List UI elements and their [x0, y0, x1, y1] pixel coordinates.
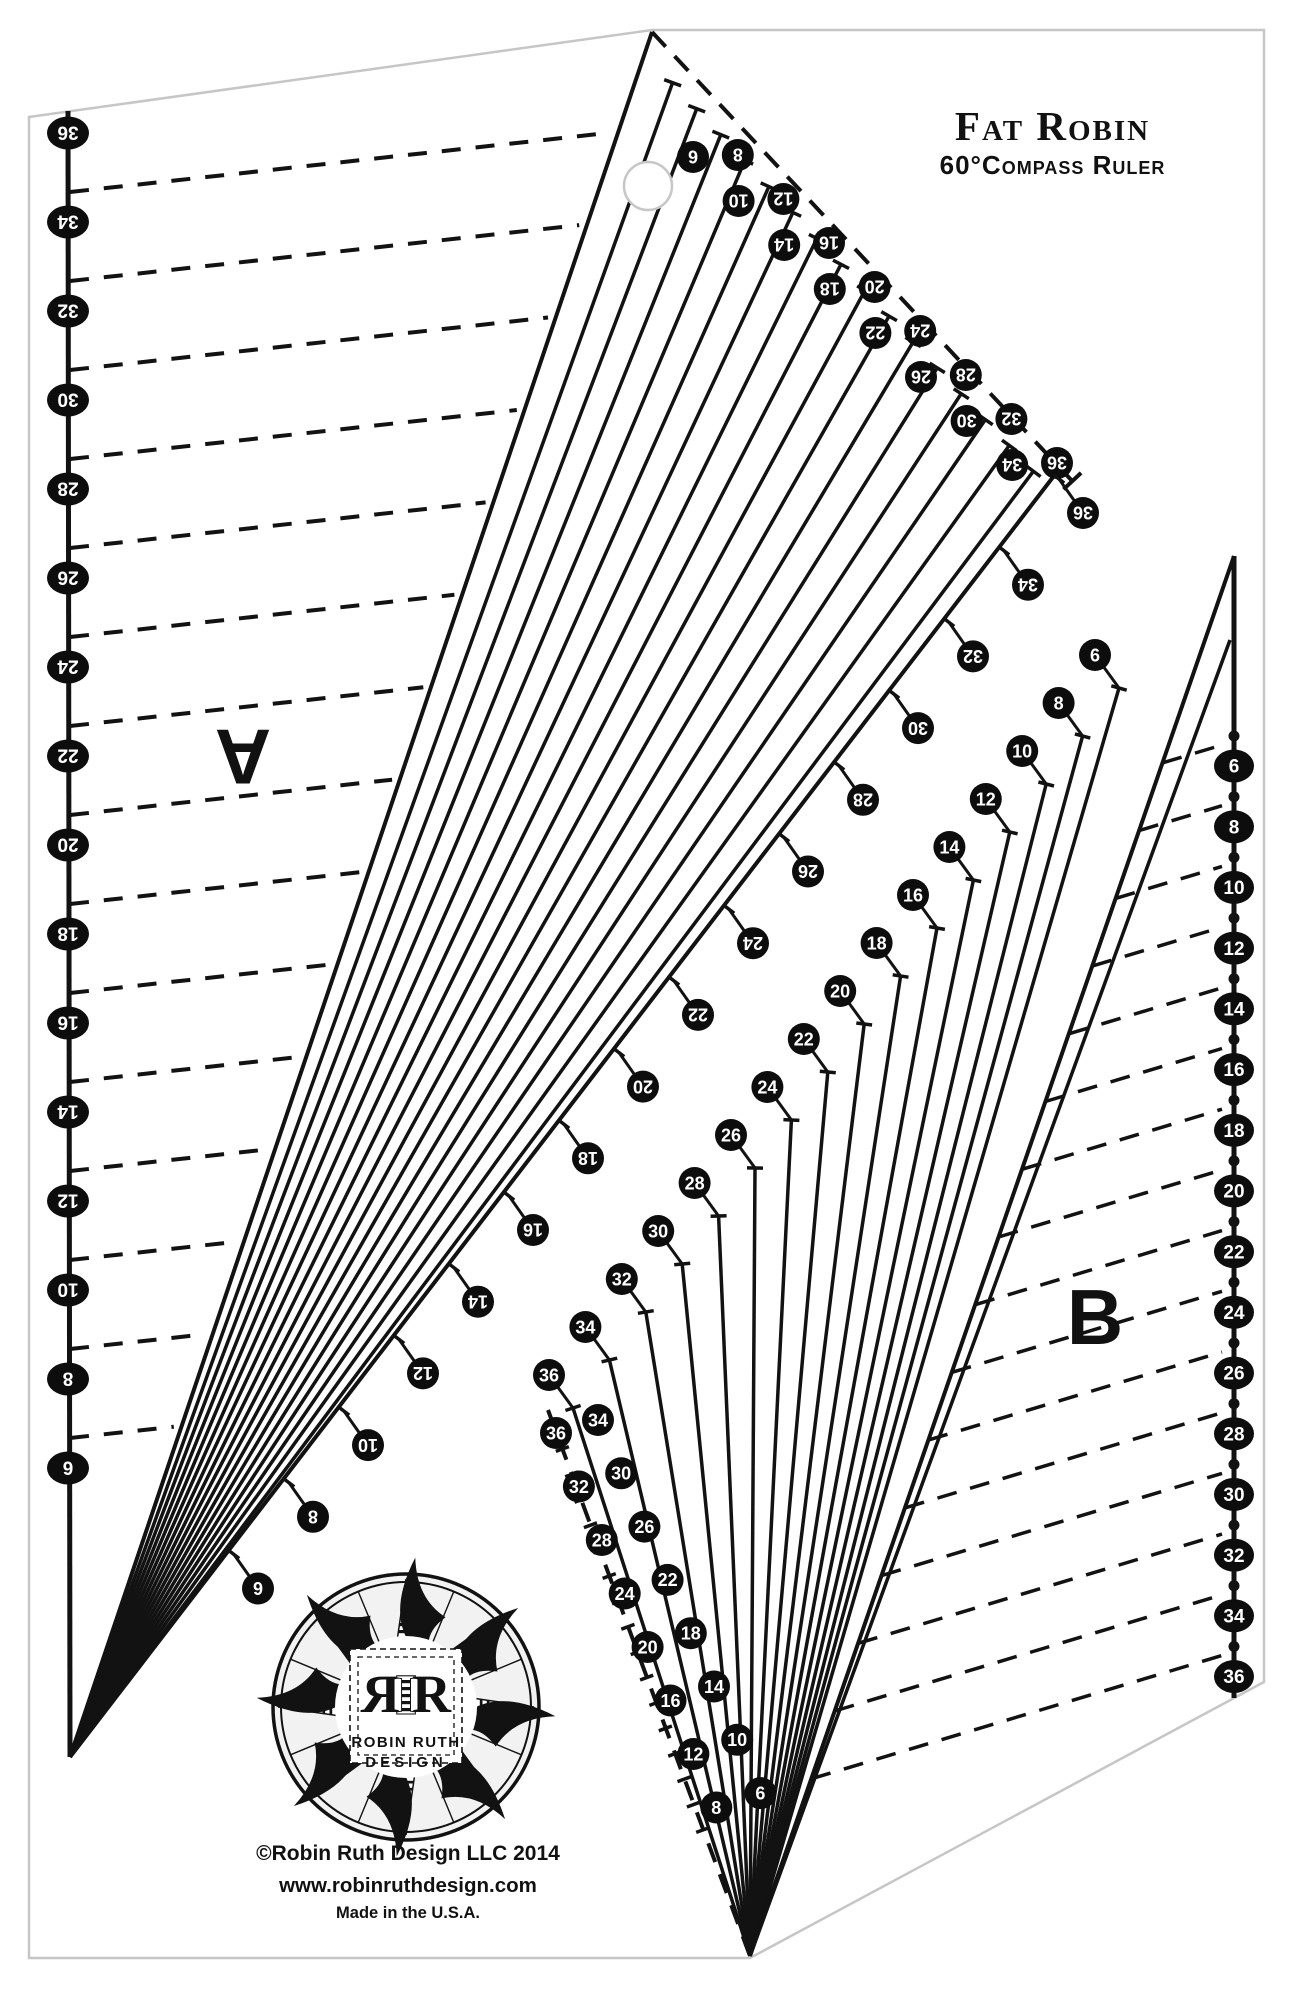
svg-text:8: 8 — [63, 1367, 74, 1388]
scale-badge: 8 — [700, 1792, 732, 1824]
svg-text:18: 18 — [57, 922, 78, 943]
product-title: Fat Robin — [880, 104, 1225, 149]
scale-badge: 8 — [47, 1363, 89, 1396]
svg-text:16: 16 — [660, 1691, 680, 1711]
svg-text:18: 18 — [578, 1148, 598, 1168]
scale-badge: 8 — [297, 1501, 329, 1533]
svg-text:34: 34 — [588, 1410, 608, 1430]
svg-text:6: 6 — [688, 147, 698, 167]
scale-badge: 30 — [1214, 1478, 1254, 1511]
scale-badge: 28 — [847, 784, 879, 816]
svg-text:26: 26 — [798, 861, 818, 881]
svg-text:36: 36 — [1047, 453, 1067, 473]
svg-text:16: 16 — [903, 885, 923, 905]
scale-badge: 24 — [47, 651, 89, 684]
svg-text:36: 36 — [546, 1423, 566, 1443]
svg-text:14: 14 — [468, 1291, 488, 1311]
svg-text:34: 34 — [575, 1317, 595, 1337]
svg-text:30: 30 — [57, 388, 78, 409]
svg-text:26: 26 — [911, 367, 931, 387]
scale-badge: 22 — [788, 1023, 820, 1055]
scale-badge: 36 — [540, 1417, 572, 1449]
scale-badge: 16 — [897, 879, 929, 911]
scale-badge: 32 — [995, 403, 1027, 435]
scale-badge: 14 — [47, 1096, 89, 1129]
svg-text:30: 30 — [908, 718, 928, 738]
svg-text:28: 28 — [685, 1173, 705, 1193]
svg-text:10: 10 — [57, 1278, 78, 1299]
svg-text:32: 32 — [612, 1269, 632, 1289]
scale-badge: 26 — [715, 1119, 747, 1151]
scale-badge: 36 — [1067, 497, 1099, 529]
title-block: Fat Robin 60°Compass Ruler — [880, 104, 1225, 182]
svg-text:30: 30 — [648, 1221, 668, 1241]
svg-text:ROBIN RUTH: ROBIN RUTH — [351, 1734, 460, 1751]
svg-text:36: 36 — [57, 121, 78, 142]
scale-badge: 30 — [902, 712, 934, 744]
scale-badge: 34 — [47, 206, 89, 239]
svg-text:24: 24 — [910, 321, 930, 341]
scale-badge: 24 — [1214, 1296, 1254, 1329]
svg-text:32: 32 — [569, 1477, 589, 1497]
scale-badge: 30 — [605, 1457, 637, 1489]
svg-text:12: 12 — [1223, 939, 1244, 960]
scale-badge: 32 — [47, 295, 89, 328]
svg-text:22: 22 — [658, 1570, 678, 1590]
scale-badge: 18 — [675, 1617, 707, 1649]
svg-text:6: 6 — [755, 1783, 765, 1803]
svg-text:32: 32 — [1223, 1546, 1244, 1567]
scale-badge: 14 — [462, 1286, 494, 1318]
scale-badge: 32 — [957, 640, 989, 672]
scale-badge: 16 — [1214, 1053, 1254, 1086]
svg-text:24: 24 — [757, 1077, 777, 1097]
scale-badge: 14 — [933, 831, 965, 863]
svg-text:28: 28 — [57, 477, 78, 498]
svg-text:32: 32 — [1001, 409, 1021, 429]
svg-text:26: 26 — [634, 1517, 654, 1537]
svg-text:20: 20 — [638, 1637, 658, 1657]
scale-badge: 20 — [1214, 1174, 1254, 1207]
scale-badge: 8 — [1043, 687, 1075, 719]
scale-badge: 22 — [47, 740, 89, 773]
svg-text:32: 32 — [57, 299, 78, 320]
scale-badge: 24 — [751, 1071, 783, 1103]
scale-badge: 10 — [1214, 871, 1254, 904]
website-text: www.robinruthdesign.com — [208, 1871, 608, 1902]
made-in-text: Made in the U.S.A. — [208, 1901, 608, 1926]
svg-text:8: 8 — [1054, 693, 1064, 713]
scale-badge: 6 — [47, 1452, 89, 1485]
svg-text:10: 10 — [1223, 878, 1244, 899]
scale-badge: 10 — [1006, 735, 1038, 767]
svg-text:28: 28 — [1223, 1424, 1244, 1445]
scale-badge: 34 — [1214, 1599, 1254, 1632]
scale-badge: 32 — [606, 1263, 638, 1295]
svg-text:22: 22 — [865, 323, 885, 343]
scale-badge: 18 — [814, 273, 846, 305]
scale-badge: 18 — [572, 1142, 604, 1174]
svg-text:24: 24 — [1223, 1303, 1245, 1324]
scale-badge: 14 — [698, 1671, 730, 1703]
scale-badge: 22 — [682, 999, 714, 1031]
svg-text:34: 34 — [1002, 455, 1022, 475]
blade-b-label: B — [1035, 1265, 1155, 1369]
svg-text:20: 20 — [633, 1076, 653, 1096]
scale-badge: 18 — [47, 918, 89, 951]
svg-text:R: R — [412, 1664, 452, 1724]
svg-text:26: 26 — [721, 1125, 741, 1145]
footer-block: ©Robin Ruth Design LLC 2014 www.robinrut… — [208, 1838, 608, 1926]
svg-text:16: 16 — [57, 1011, 78, 1032]
scale-badge: 26 — [905, 361, 937, 393]
svg-text:30: 30 — [957, 411, 977, 431]
svg-text:18: 18 — [681, 1624, 701, 1644]
svg-text:DESIGN: DESIGN — [365, 1754, 447, 1771]
scale-badge: 6 — [242, 1573, 274, 1605]
svg-text:22: 22 — [57, 744, 78, 765]
svg-text:24: 24 — [743, 933, 763, 953]
svg-text:24: 24 — [615, 1584, 635, 1604]
svg-text:34: 34 — [1223, 1606, 1245, 1627]
svg-text:6: 6 — [63, 1456, 74, 1477]
svg-text:14: 14 — [57, 1100, 79, 1121]
scale-badge: 16 — [813, 227, 845, 259]
svg-text:14: 14 — [704, 1677, 724, 1697]
svg-text:28: 28 — [853, 790, 873, 810]
ruler-product-image: 6810121416182022242628303234363634323028… — [0, 0, 1300, 1995]
svg-text:18: 18 — [820, 279, 840, 299]
svg-text:8: 8 — [1229, 817, 1240, 838]
svg-text:10: 10 — [358, 1435, 378, 1455]
svg-text:28: 28 — [956, 365, 976, 385]
svg-text:20: 20 — [865, 277, 885, 297]
scale-badge: 26 — [1214, 1357, 1254, 1390]
svg-text:8: 8 — [733, 145, 743, 165]
scale-badge: 16 — [517, 1214, 549, 1246]
scale-badge: 12 — [767, 183, 799, 215]
scale-badge: 10 — [723, 185, 755, 217]
scale-badge: 30 — [951, 405, 983, 437]
scale-badge: 12 — [1214, 932, 1254, 965]
scale-badge: 24 — [609, 1578, 641, 1610]
scale-badge: 12 — [970, 783, 1002, 815]
scale-badge: 34 — [1012, 569, 1044, 601]
svg-text:12: 12 — [773, 189, 793, 209]
svg-text:36: 36 — [1223, 1667, 1244, 1688]
scale-badge: 28 — [679, 1167, 711, 1199]
scale-badge: 34 — [996, 449, 1028, 481]
scale-badge: 10 — [352, 1429, 384, 1461]
scale-badge: 32 — [563, 1471, 595, 1503]
svg-text:12: 12 — [57, 1189, 78, 1210]
scale-badge: 30 — [47, 384, 89, 417]
scale-badge: 26 — [792, 856, 824, 888]
svg-text:34: 34 — [1018, 574, 1038, 594]
scale-badge: 22 — [652, 1564, 684, 1596]
svg-text:12: 12 — [683, 1744, 703, 1764]
svg-text:12: 12 — [413, 1363, 433, 1383]
svg-text:10: 10 — [729, 191, 749, 211]
scale-badge: 34 — [582, 1404, 614, 1436]
scale-badge: 6 — [744, 1777, 776, 1809]
svg-text:14: 14 — [1223, 999, 1245, 1020]
svg-text:6: 6 — [253, 1578, 263, 1598]
svg-text:20: 20 — [1223, 1182, 1244, 1203]
scale-badge: 18 — [861, 927, 893, 959]
blade-a-label: A — [183, 705, 303, 809]
svg-text:36: 36 — [1073, 503, 1093, 523]
scale-badge: 36 — [533, 1359, 565, 1391]
scale-badge: 12 — [407, 1357, 439, 1389]
scale-badge: 32 — [1214, 1539, 1254, 1572]
svg-text:20: 20 — [830, 981, 850, 1001]
svg-text:34: 34 — [57, 210, 79, 231]
scale-badge: 10 — [721, 1724, 753, 1756]
svg-text:16: 16 — [523, 1220, 543, 1240]
scale-badge: 28 — [1214, 1417, 1254, 1450]
copyright-text: ©Robin Ruth Design LLC 2014 — [208, 1838, 608, 1871]
scale-badge: 36 — [1214, 1660, 1254, 1693]
svg-text:22: 22 — [794, 1029, 814, 1049]
svg-text:26: 26 — [57, 566, 78, 587]
scale-badge: 20 — [632, 1631, 664, 1663]
svg-text:6: 6 — [1229, 757, 1240, 778]
scale-badge: 20 — [627, 1071, 659, 1103]
scale-badge: 6 — [677, 141, 709, 173]
svg-text:18: 18 — [867, 933, 887, 953]
svg-text:22: 22 — [688, 1005, 708, 1025]
scale-badge: 6 — [1079, 639, 1111, 671]
scale-badge: 16 — [655, 1685, 687, 1717]
svg-text:10: 10 — [1012, 741, 1032, 761]
svg-text:16: 16 — [1223, 1060, 1244, 1081]
svg-text:36: 36 — [539, 1365, 559, 1385]
compass-ruler-graphic: 6810121416182022242628303234363634323028… — [0, 0, 1300, 1995]
svg-text:26: 26 — [1223, 1364, 1244, 1385]
scale-badge: 20 — [824, 975, 856, 1007]
scale-badge: 22 — [859, 317, 891, 349]
scale-badge: 12 — [47, 1185, 89, 1218]
svg-text:32: 32 — [963, 646, 983, 666]
svg-text:14: 14 — [939, 837, 959, 857]
svg-text:30: 30 — [611, 1464, 631, 1484]
svg-text:8: 8 — [308, 1507, 318, 1527]
svg-text:10: 10 — [727, 1730, 747, 1750]
scale-badge: 24 — [737, 927, 769, 959]
scale-badge: 24 — [904, 315, 936, 347]
scale-badge: 26 — [628, 1511, 660, 1543]
scale-badge: 28 — [586, 1524, 618, 1556]
svg-text:18: 18 — [1223, 1121, 1244, 1142]
scale-badge: 28 — [950, 359, 982, 391]
scale-badge: 14 — [768, 229, 800, 261]
scale-badge: 16 — [47, 1007, 89, 1040]
hanging-hole — [624, 162, 672, 210]
scale-badge: 6 — [1214, 750, 1254, 783]
scale-badge: 22 — [1214, 1235, 1254, 1268]
scale-badge: 36 — [47, 117, 89, 150]
svg-text:24: 24 — [57, 655, 79, 676]
svg-text:20: 20 — [57, 833, 78, 854]
scale-badge: 14 — [1214, 992, 1254, 1025]
svg-text:6: 6 — [1090, 645, 1100, 665]
svg-text:22: 22 — [1223, 1242, 1244, 1263]
svg-text:28: 28 — [592, 1530, 612, 1550]
scale-badge: 8 — [1214, 810, 1254, 843]
scale-badge: 18 — [1214, 1114, 1254, 1147]
svg-text:12: 12 — [976, 789, 996, 809]
svg-text:30: 30 — [1223, 1485, 1244, 1506]
scale-badge: 10 — [47, 1274, 89, 1307]
svg-text:14: 14 — [774, 235, 794, 255]
scale-badge: 34 — [569, 1311, 601, 1343]
svg-text:16: 16 — [819, 233, 839, 253]
svg-text:8: 8 — [711, 1798, 721, 1818]
scale-badge: 12 — [677, 1738, 709, 1770]
scale-badge: 26 — [47, 562, 89, 595]
scale-badge: 8 — [722, 139, 754, 171]
scale-badge: 20 — [859, 271, 891, 303]
scale-badge: 30 — [642, 1215, 674, 1247]
scale-badge: 28 — [47, 473, 89, 506]
scale-badge: 20 — [47, 829, 89, 862]
scale-badge: 36 — [1041, 447, 1073, 479]
product-subtitle: 60°Compass Ruler — [880, 149, 1225, 182]
